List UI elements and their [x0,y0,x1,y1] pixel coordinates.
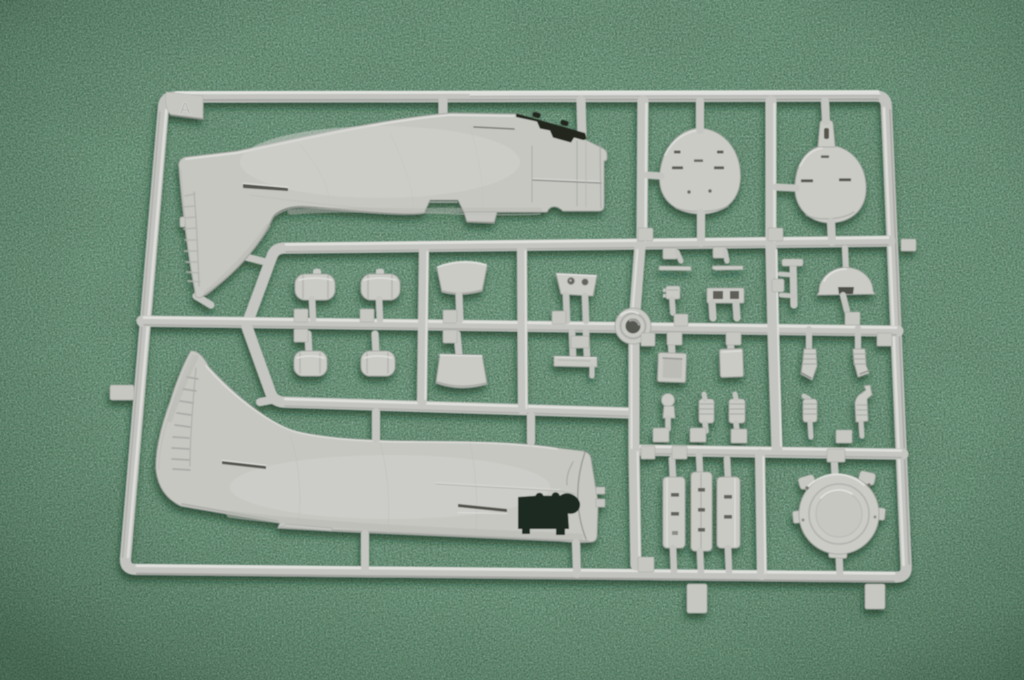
svg-text:A: A [179,99,191,118]
